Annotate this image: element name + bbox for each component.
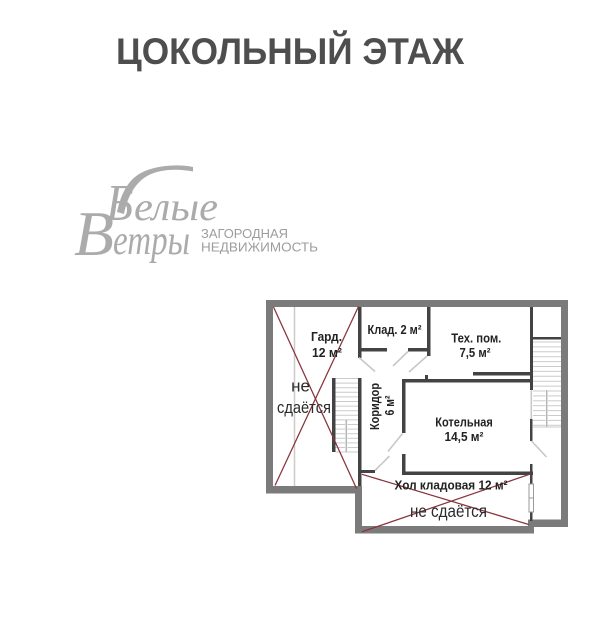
svg-text:В: В [74,198,114,269]
svg-text:ЗАГОРОДНАЯ: ЗАГОРОДНАЯ [201,227,288,241]
svg-text:етры: етры [113,218,190,264]
svg-text:Клад. 2 м²: Клад. 2 м² [368,322,423,337]
svg-text:Котельная: Котельная [435,415,493,430]
svg-text:Хол кладовая 12 м²: Хол кладовая 12 м² [395,478,509,493]
svg-text:Коридор: Коридор [367,383,382,430]
svg-text:Гард.: Гард. [311,329,342,344]
svg-text:НЕДВИЖИМОСТЬ: НЕДВИЖИМОСТЬ [201,241,318,255]
svg-text:ЦОКОЛЬНЫЙ ЭТАЖ: ЦОКОЛЬНЫЙ ЭТАЖ [116,30,465,72]
svg-text:не сдаётся: не сдаётся [410,501,487,521]
svg-text:Тех. пом.: Тех. пом. [451,331,501,346]
svg-text:12 м²: 12 м² [312,345,343,360]
svg-text:7,5 м²: 7,5 м² [460,345,492,360]
svg-text:не: не [291,377,310,396]
svg-text:сдаётся: сдаётся [277,398,331,417]
svg-text:14,5 м²: 14,5 м² [445,429,485,444]
svg-text:6 м²: 6 м² [382,395,397,416]
